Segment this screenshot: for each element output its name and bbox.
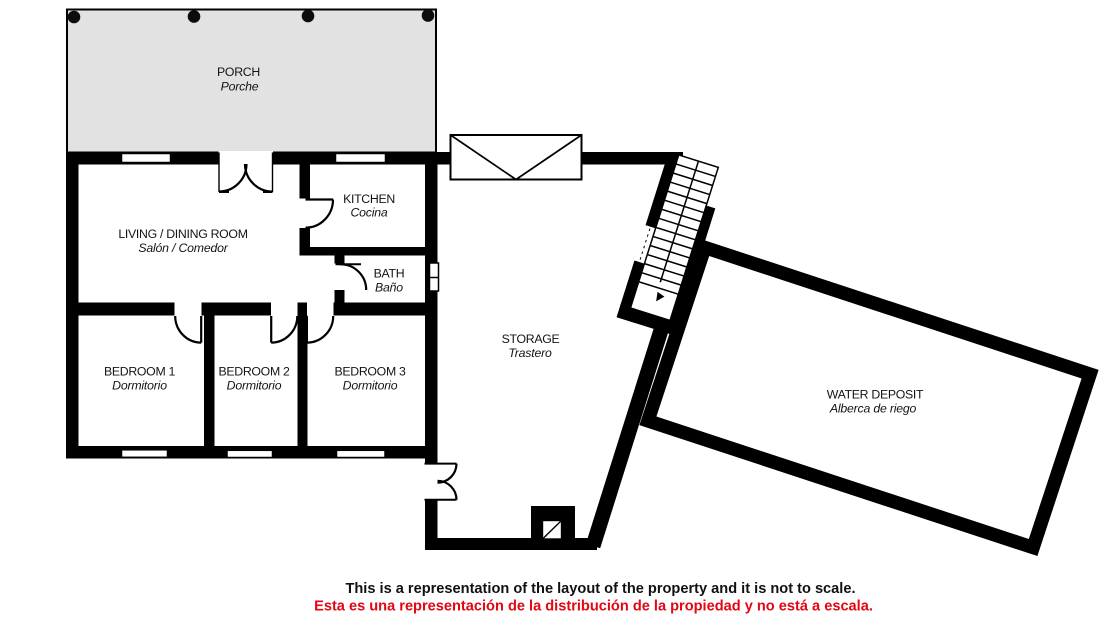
svg-text:Baño: Baño xyxy=(375,281,403,295)
svg-text:Alberca de riego: Alberca de riego xyxy=(829,402,917,416)
svg-text:BEDROOM 2: BEDROOM 2 xyxy=(218,365,290,379)
svg-text:Salón / Comedor: Salón / Comedor xyxy=(138,241,228,255)
svg-text:WATER DEPOSIT: WATER DEPOSIT xyxy=(827,388,924,402)
svg-text:STORAGE: STORAGE xyxy=(502,332,560,346)
svg-text:Porche: Porche xyxy=(221,80,259,94)
svg-text:BATH: BATH xyxy=(374,267,405,281)
svg-text:BEDROOM 3: BEDROOM 3 xyxy=(334,365,406,379)
svg-text:Dormitorio: Dormitorio xyxy=(112,379,167,393)
svg-text:KITCHEN: KITCHEN xyxy=(343,192,395,206)
svg-text:This is a representation of th: This is a representation of the layout o… xyxy=(345,581,855,597)
svg-text:Dormitorio: Dormitorio xyxy=(343,379,398,393)
svg-text:Trastero: Trastero xyxy=(508,346,552,360)
svg-text:Esta es una representación de: Esta es una representación de la distrib… xyxy=(314,599,873,615)
svg-text:LIVING / DINING ROOM: LIVING / DINING ROOM xyxy=(118,227,247,241)
svg-text:Cocina: Cocina xyxy=(350,206,387,220)
svg-text:BEDROOM 1: BEDROOM 1 xyxy=(104,365,176,379)
svg-text:PORCH: PORCH xyxy=(217,65,260,79)
svg-text:Dormitorio: Dormitorio xyxy=(227,379,282,393)
